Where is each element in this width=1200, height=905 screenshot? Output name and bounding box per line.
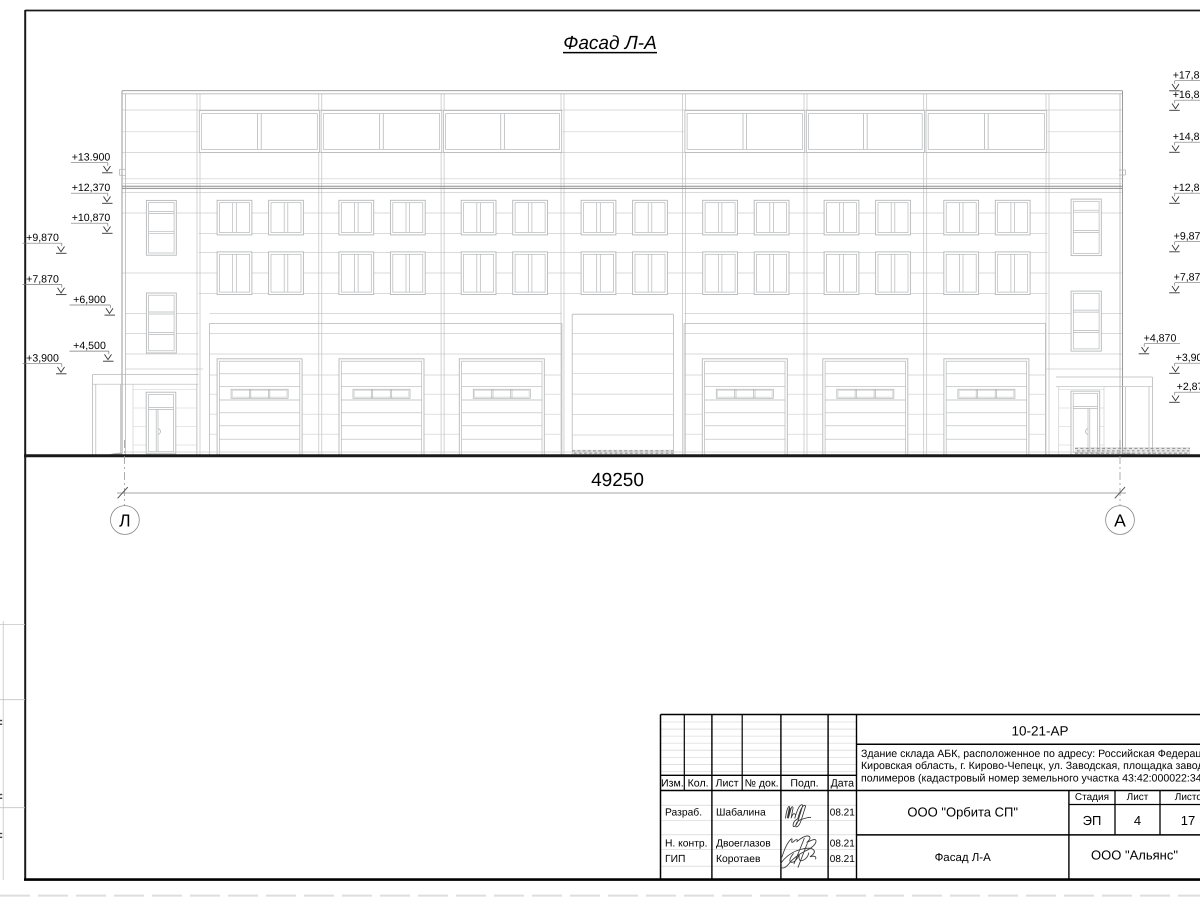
svg-text:№ док.: № док. (745, 778, 779, 790)
svg-text:Дата: Дата (831, 778, 855, 790)
svg-text:+3,900: +3,900 (26, 353, 59, 365)
svg-text:Изм.: Изм. (661, 778, 684, 790)
svg-text:49250: 49250 (591, 470, 644, 491)
svg-text:4: 4 (1134, 813, 1141, 828)
svg-text:Стадия: Стадия (1075, 792, 1109, 803)
svg-text:+9,870: +9,870 (1174, 231, 1200, 243)
svg-text:+12,370: +12,370 (72, 182, 111, 194)
svg-text:А: А (1114, 510, 1126, 530)
svg-text:08.21: 08.21 (830, 807, 855, 818)
svg-text:Н. контр.: Н. контр. (665, 838, 708, 849)
svg-text:+17,870: +17,870 (1173, 70, 1200, 82)
svg-text:Л: Л (119, 510, 130, 530)
svg-text:10-21-АР: 10-21-АР (1011, 723, 1068, 738)
svg-text:+9,870: +9,870 (26, 232, 59, 244)
svg-text:+4,500: +4,500 (73, 340, 106, 352)
svg-text:Двоеглазов: Двоеглазов (716, 838, 771, 849)
svg-text:+6,900: +6,900 (73, 294, 106, 306)
svg-text:+12,870: +12,870 (1173, 182, 1200, 194)
svg-text:Листов: Листов (1175, 792, 1200, 803)
svg-text:ГИП: ГИП (665, 854, 685, 865)
svg-text:ООО "Орбита СП": ООО "Орбита СП" (907, 805, 1018, 820)
svg-text:+10,870: +10,870 (72, 212, 111, 224)
svg-text:Лист: Лист (1127, 792, 1149, 803)
svg-text:Фасад Л-А: Фасад Л-А (935, 852, 992, 864)
svg-text:+7,870: +7,870 (26, 273, 59, 285)
svg-text:Кировская область, г. Кирово-Ч: Кировская область, г. Кирово-Чепецк, ул.… (861, 760, 1200, 772)
svg-text:+16,870: +16,870 (1173, 89, 1200, 101)
svg-text:Шабалина: Шабалина (716, 807, 766, 818)
svg-text:Кол.: Кол. (688, 778, 709, 790)
svg-text:Разраб.: Разраб. (665, 807, 702, 818)
svg-text:Фасад Л-А: Фасад Л-А (563, 33, 657, 54)
svg-text:Подп.: Подп. (790, 778, 818, 790)
svg-text:08.21: 08.21 (830, 838, 855, 849)
svg-text:+7,870: +7,870 (1174, 272, 1200, 284)
svg-text:ООО "Альянс": ООО "Альянс" (1091, 848, 1178, 863)
svg-text:Здание склада АБК, расположенн: Здание склада АБК, расположенное по адре… (861, 748, 1200, 760)
svg-text:08.21: 08.21 (830, 854, 855, 865)
svg-text:17: 17 (1181, 813, 1195, 828)
svg-text:+3,900: +3,900 (1176, 352, 1200, 364)
svg-text:Лист: Лист (716, 778, 739, 790)
svg-text:ЭП: ЭП (1083, 813, 1102, 828)
svg-text:+4,870: +4,870 (1144, 333, 1177, 345)
svg-text:+14,870: +14,870 (1173, 131, 1200, 143)
svg-text:полимеров (кадастровый номер з: полимеров (кадастровый номер земельного … (861, 773, 1200, 785)
svg-text:Коротаев: Коротаев (716, 854, 761, 865)
svg-text:+2,870: +2,870 (1177, 381, 1200, 393)
svg-text:+13.900: +13.900 (72, 152, 111, 164)
